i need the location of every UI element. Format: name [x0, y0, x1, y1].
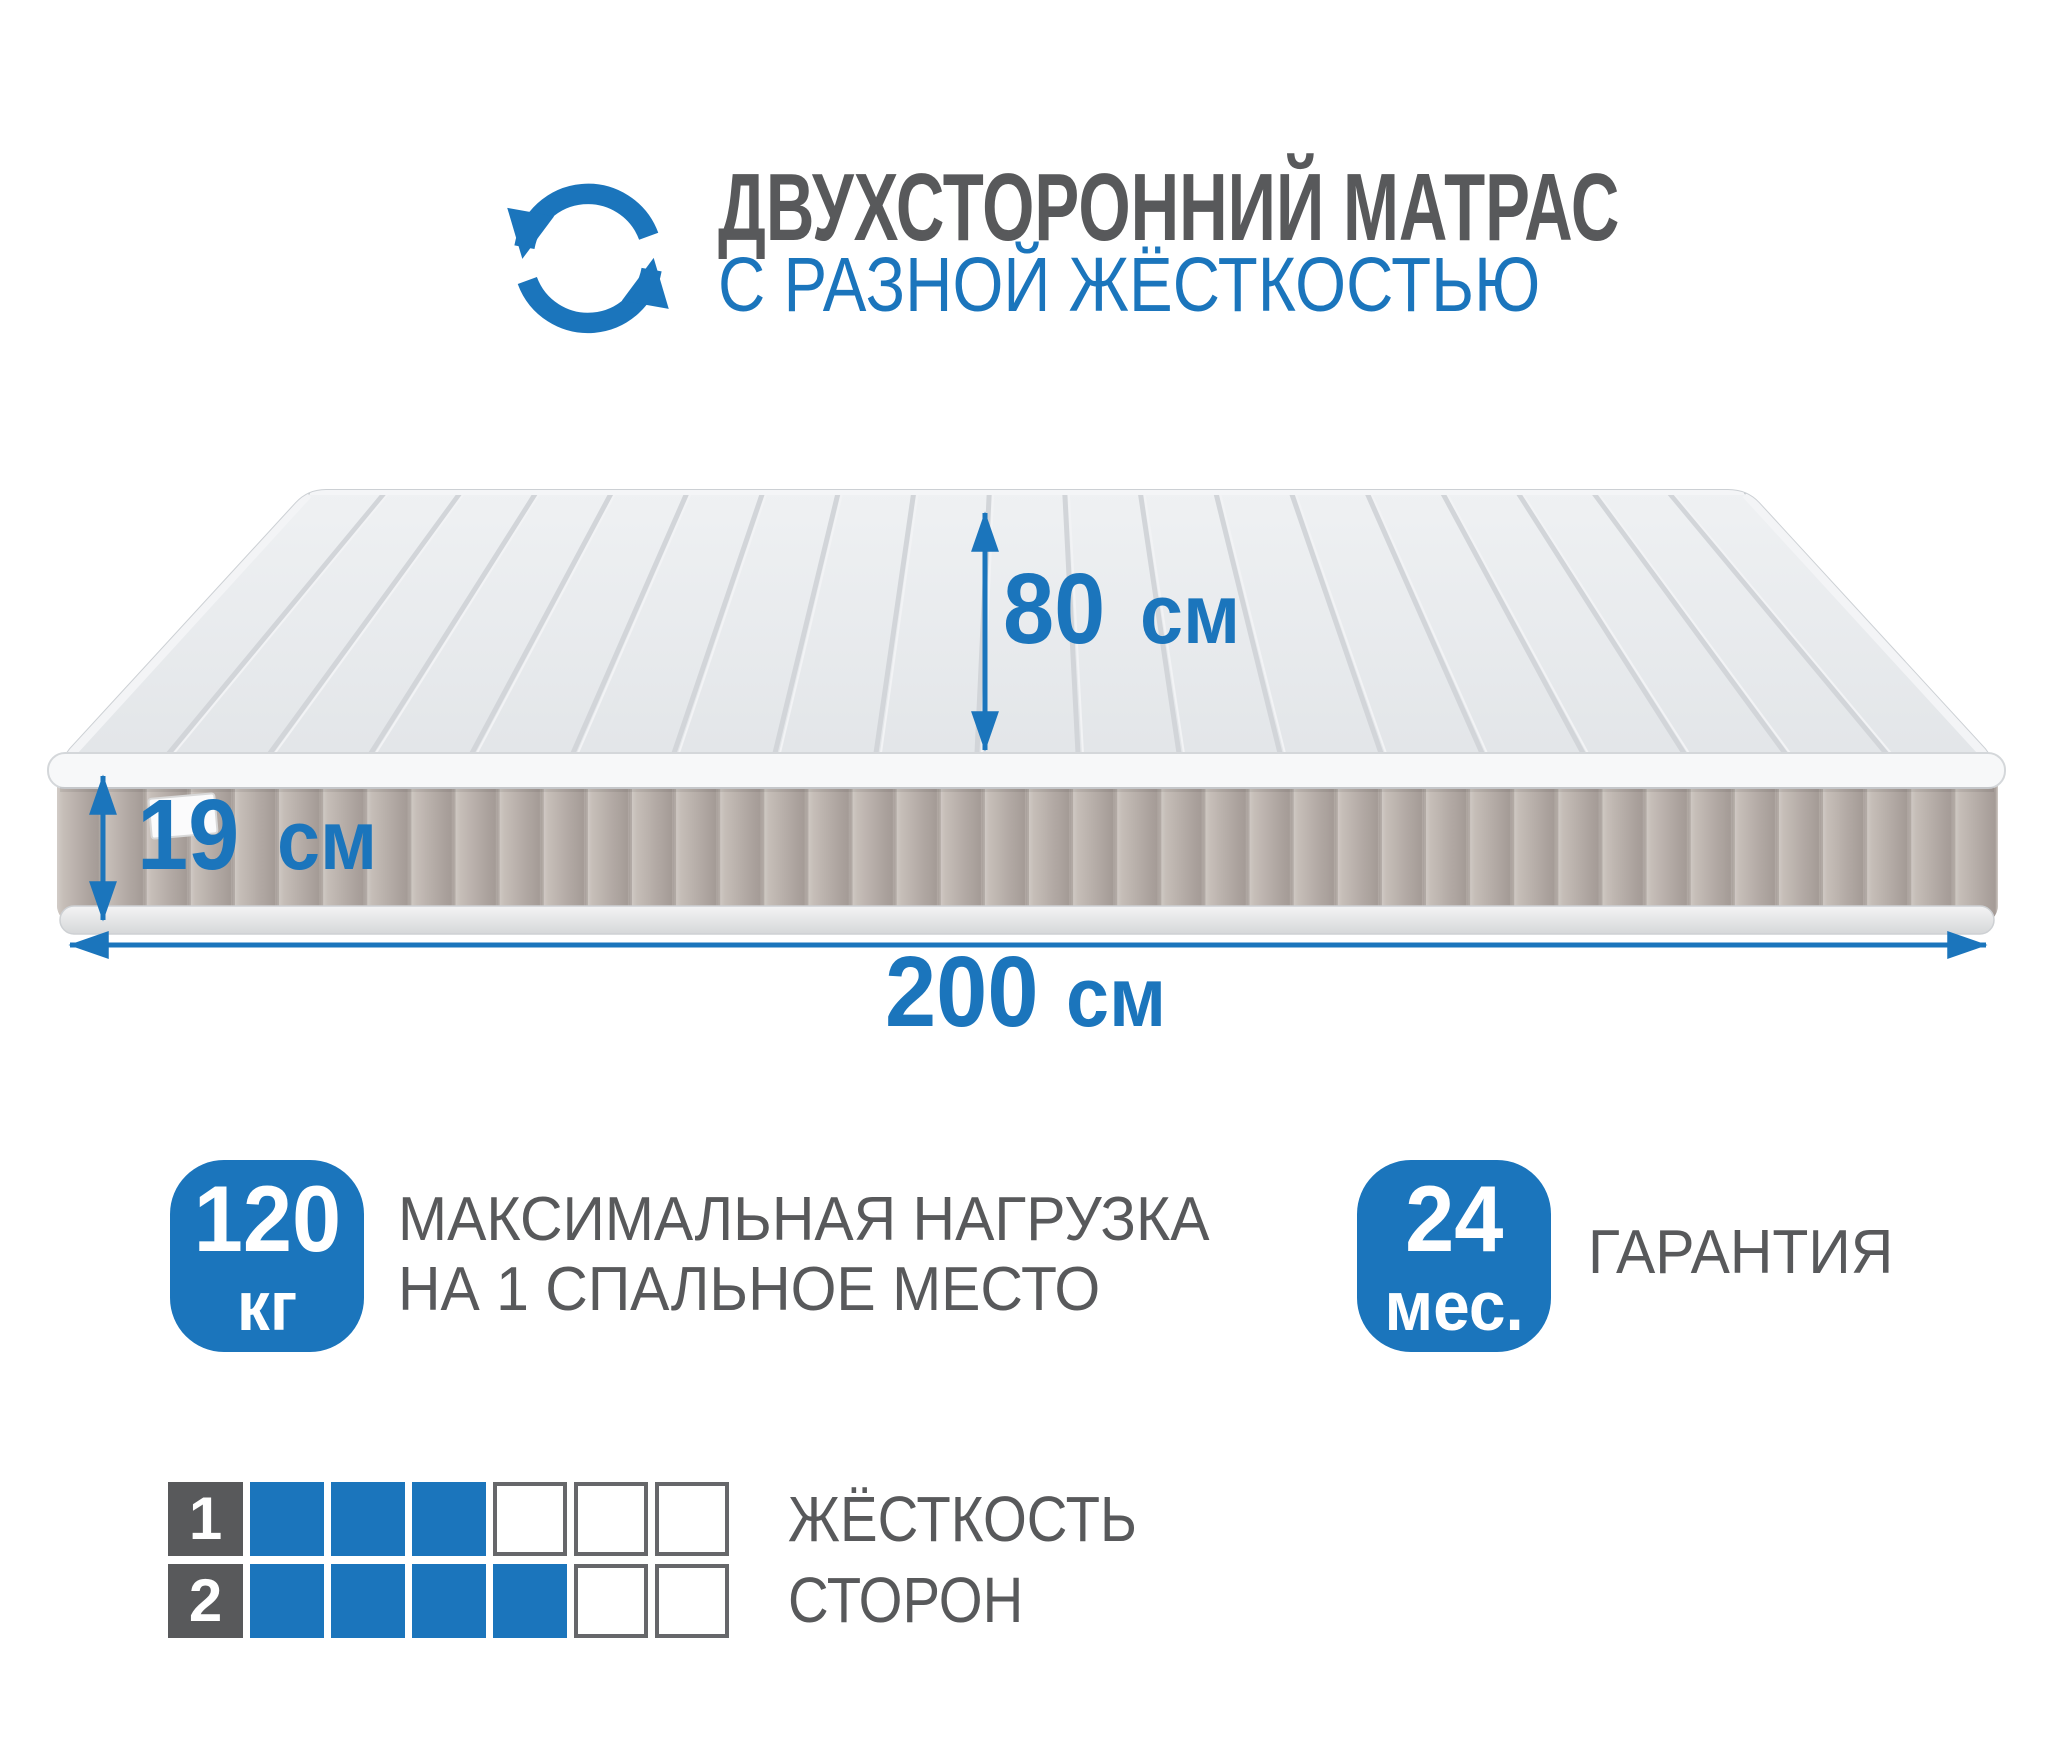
- firmness-side-number: 2: [168, 1564, 243, 1638]
- firmness-cell-empty: [655, 1482, 729, 1556]
- warranty-badge: 24 мес.: [1357, 1160, 1551, 1352]
- max-load-value: 120: [193, 1172, 340, 1266]
- dimension-width-label: 80 см: [1003, 559, 1249, 659]
- firmness-cell-filled: [493, 1564, 567, 1638]
- firmness-cell-filled: [331, 1564, 405, 1638]
- firmness-cell-empty: [574, 1564, 648, 1638]
- rotate-arrows-icon: [503, 170, 673, 340]
- max-load-label: МАКСИМАЛЬНАЯ НАГРУЗКА НА 1 СПАЛЬНОЕ МЕСТ…: [398, 1185, 1210, 1325]
- dimension-length-value: 200: [885, 942, 1039, 1042]
- firmness-label-line2: СТОРОН: [788, 1563, 1023, 1637]
- dimension-length-label: 200 см: [885, 942, 1175, 1042]
- dimension-width-unit: см: [1140, 572, 1240, 656]
- dimension-height-value: 19: [137, 785, 239, 885]
- warranty-label: ГАРАНТИЯ: [1588, 1218, 1893, 1288]
- firmness-row-1: 1: [168, 1482, 729, 1556]
- firmness-cell-filled: [250, 1482, 324, 1556]
- max-load-badge: 120 кг: [170, 1160, 364, 1352]
- firmness-cell-empty: [655, 1564, 729, 1638]
- dimension-length-unit: см: [1066, 955, 1166, 1039]
- mattress-illustration: [0, 368, 2048, 988]
- mattress-infographic: ДВУХСТОРОННИЙ МАТРАС С РАЗНОЙ ЖЁСТКОСТЬЮ: [0, 0, 2048, 1757]
- firmness-cell-filled: [412, 1482, 486, 1556]
- warranty-value: 24: [1405, 1172, 1503, 1266]
- firmness-label-line1: ЖЁСТКОСТЬ: [788, 1482, 1137, 1556]
- firmness-scale: 12: [168, 1482, 729, 1638]
- max-load-unit: кг: [237, 1271, 297, 1341]
- title-line2: С РАЗНОЙ ЖЁСТКОСТЬЮ: [718, 247, 1540, 324]
- firmness-cell-empty: [574, 1482, 648, 1556]
- firmness-cell-empty: [493, 1482, 567, 1556]
- firmness-cell-filled: [412, 1564, 486, 1638]
- dimension-width-value: 80: [1003, 559, 1105, 659]
- dimension-height-label: 19 см: [137, 785, 386, 885]
- firmness-cell-filled: [250, 1564, 324, 1638]
- warranty-unit: мес.: [1384, 1271, 1523, 1341]
- max-load-label-line2: НА 1 СПАЛЬНОЕ МЕСТО: [398, 1255, 1210, 1325]
- max-load-label-line1: МАКСИМАЛЬНАЯ НАГРУЗКА: [398, 1185, 1210, 1255]
- firmness-row-2: 2: [168, 1564, 729, 1638]
- firmness-side-number: 1: [168, 1482, 243, 1556]
- firmness-cell-filled: [331, 1482, 405, 1556]
- dimension-height-unit: см: [277, 798, 377, 882]
